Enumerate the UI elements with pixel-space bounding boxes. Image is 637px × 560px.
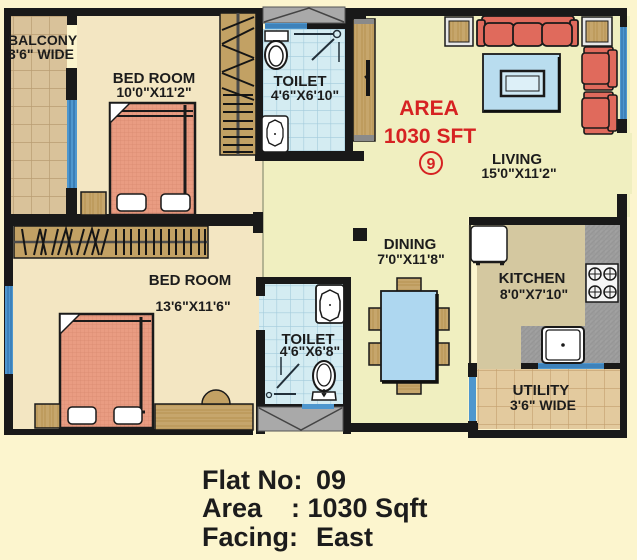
svg-text:BED ROOM: BED ROOM (149, 272, 232, 289)
svg-text:3'6" WIDE: 3'6" WIDE (510, 397, 576, 413)
svg-text:10'0"X11'2": 10'0"X11'2" (116, 84, 191, 100)
svg-text:1030 SFT: 1030 SFT (384, 125, 476, 148)
svg-text:13'6"X11'6": 13'6"X11'6" (155, 298, 230, 314)
svg-text:9: 9 (427, 156, 436, 173)
svg-text:4'6"X6'8": 4'6"X6'8" (280, 343, 340, 359)
svg-text:Area: 1030 Sqft: Area: 1030 Sqft (202, 493, 428, 523)
svg-text:15'0"X11'2": 15'0"X11'2" (481, 165, 556, 181)
svg-text:4'6"X6'10": 4'6"X6'10" (271, 87, 339, 103)
svg-text:Flat No:09: Flat No:09 (202, 465, 346, 495)
svg-text:3'6" WIDE: 3'6" WIDE (8, 46, 74, 62)
svg-text:Facing:East: Facing:East (202, 522, 373, 552)
svg-text:AREA: AREA (399, 97, 459, 120)
svg-text:KITCHEN: KITCHEN (499, 270, 566, 287)
svg-text:8'0"X7'10": 8'0"X7'10" (500, 286, 568, 302)
svg-text:7'0"X11'8": 7'0"X11'8" (377, 251, 444, 267)
